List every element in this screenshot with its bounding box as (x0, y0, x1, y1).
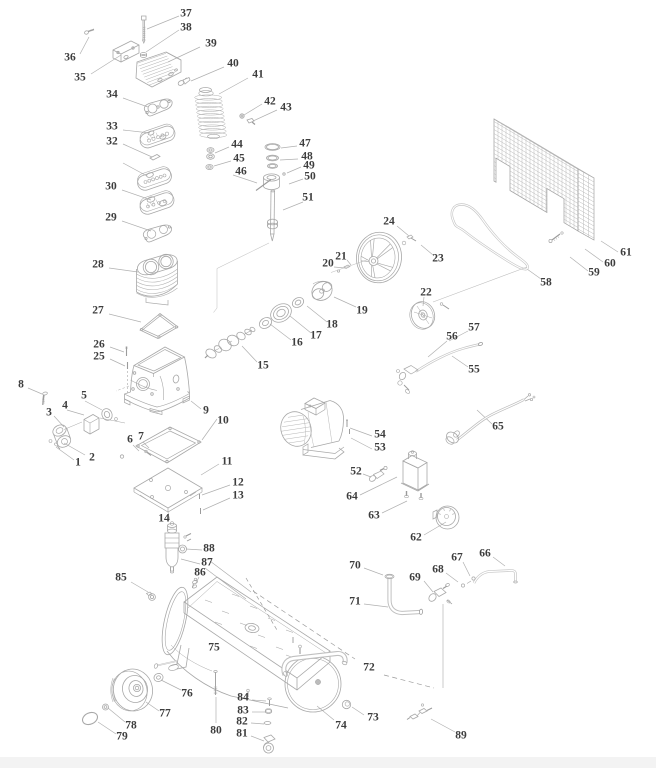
svg-text:21: 21 (335, 251, 347, 263)
svg-text:86: 86 (194, 567, 206, 579)
svg-text:46: 46 (235, 166, 247, 178)
svg-text:68: 68 (432, 564, 444, 576)
svg-text:39: 39 (205, 38, 217, 50)
svg-text:59: 59 (588, 267, 600, 279)
svg-text:89: 89 (455, 730, 467, 742)
svg-text:88: 88 (203, 543, 215, 555)
svg-text:50: 50 (304, 171, 316, 183)
svg-text:11: 11 (222, 456, 233, 468)
svg-text:5: 5 (81, 390, 87, 402)
svg-text:75: 75 (208, 642, 220, 654)
svg-text:13: 13 (232, 490, 244, 502)
svg-text:58: 58 (540, 277, 552, 289)
svg-text:35: 35 (74, 72, 86, 84)
svg-text:44: 44 (231, 139, 243, 151)
svg-text:85: 85 (115, 572, 127, 584)
svg-text:43: 43 (280, 102, 292, 114)
svg-text:66: 66 (479, 548, 491, 560)
svg-text:53: 53 (374, 442, 386, 454)
svg-text:36: 36 (64, 52, 76, 64)
svg-text:67: 67 (451, 552, 463, 564)
svg-text:12: 12 (232, 477, 244, 489)
svg-text:3: 3 (46, 407, 52, 419)
svg-text:4: 4 (62, 400, 68, 412)
svg-text:23: 23 (432, 253, 444, 265)
svg-text:80: 80 (210, 725, 222, 737)
svg-text:6: 6 (127, 434, 133, 446)
svg-text:63: 63 (368, 510, 380, 522)
svg-text:64: 64 (346, 491, 358, 503)
svg-text:74: 74 (335, 720, 347, 732)
svg-text:42: 42 (264, 96, 276, 108)
svg-text:8: 8 (18, 379, 24, 391)
svg-text:51: 51 (302, 192, 314, 204)
svg-text:1: 1 (75, 457, 81, 469)
svg-text:28: 28 (92, 259, 104, 271)
svg-text:20: 20 (322, 258, 334, 270)
svg-text:27: 27 (92, 305, 104, 317)
svg-text:45: 45 (233, 153, 245, 165)
svg-text:57: 57 (468, 322, 480, 334)
svg-text:54: 54 (374, 429, 386, 441)
svg-text:15: 15 (257, 360, 269, 372)
svg-text:47: 47 (299, 138, 311, 150)
svg-text:41: 41 (252, 69, 264, 81)
svg-text:10: 10 (217, 415, 229, 427)
svg-text:60: 60 (604, 258, 616, 270)
svg-text:38: 38 (180, 22, 192, 34)
svg-text:56: 56 (446, 331, 458, 343)
svg-text:52: 52 (350, 466, 362, 478)
svg-text:82: 82 (236, 716, 248, 728)
svg-text:34: 34 (106, 89, 118, 101)
svg-text:77: 77 (159, 708, 171, 720)
svg-text:16: 16 (291, 337, 303, 349)
svg-text:37: 37 (180, 8, 192, 20)
svg-text:81: 81 (236, 728, 248, 740)
svg-text:40: 40 (227, 58, 239, 70)
svg-text:29: 29 (105, 212, 117, 224)
svg-text:22: 22 (420, 287, 432, 299)
svg-text:61: 61 (620, 247, 632, 259)
svg-text:2: 2 (89, 452, 95, 464)
svg-text:17: 17 (310, 330, 322, 342)
svg-text:65: 65 (492, 421, 504, 433)
svg-text:7: 7 (138, 431, 144, 443)
svg-text:72: 72 (363, 662, 375, 674)
svg-text:32: 32 (106, 136, 118, 148)
svg-text:24: 24 (383, 216, 395, 228)
svg-text:71: 71 (349, 596, 361, 608)
svg-text:79: 79 (116, 731, 128, 743)
svg-text:70: 70 (349, 560, 361, 572)
svg-text:69: 69 (409, 572, 421, 584)
svg-text:26: 26 (93, 339, 105, 351)
svg-text:55: 55 (468, 364, 480, 376)
svg-text:9: 9 (203, 405, 209, 417)
svg-text:62: 62 (410, 532, 422, 544)
svg-text:25: 25 (93, 351, 105, 363)
svg-text:14: 14 (158, 513, 170, 525)
svg-text:30: 30 (105, 181, 117, 193)
svg-text:76: 76 (181, 688, 193, 700)
svg-text:18: 18 (326, 319, 338, 331)
svg-text:19: 19 (356, 305, 368, 317)
svg-text:73: 73 (367, 712, 379, 724)
svg-text:84: 84 (237, 692, 249, 704)
svg-text:33: 33 (106, 121, 118, 133)
